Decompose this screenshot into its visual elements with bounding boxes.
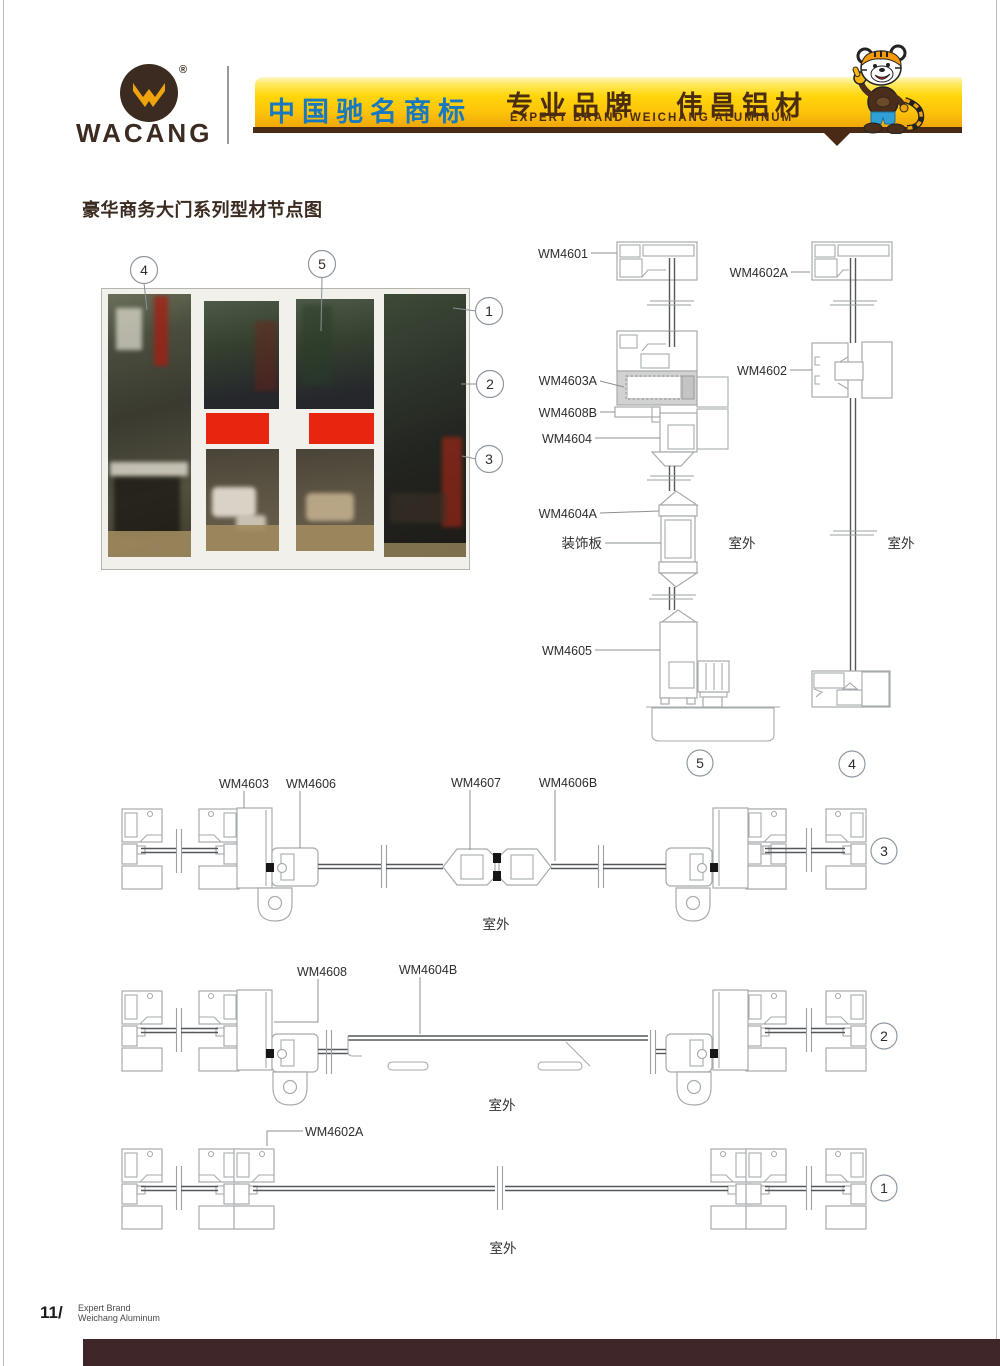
footer-line1: Expert Brand [78, 1303, 131, 1313]
callout-3-circle [476, 446, 503, 473]
photo-left-fixed-panel [108, 294, 191, 557]
label-wm4607: WM4607 [451, 776, 501, 790]
door-photo [101, 288, 470, 570]
footer-line2: Weichang Aluminum [78, 1313, 160, 1323]
label-wm4604a: WM4604A [539, 507, 598, 521]
label-outdoor-4: 室外 [888, 535, 916, 551]
tiger-mascot-icon [845, 40, 933, 134]
callout-2: 2 [486, 376, 494, 392]
label-wm4602: WM4602 [737, 364, 787, 378]
horizontal-section-2: WM4608 WM4604B 室外 2 [122, 963, 897, 1113]
section-3-circle [871, 838, 897, 864]
registered-mark: ® [179, 64, 187, 76]
photo-door2-bottom-glass [296, 449, 374, 551]
section-2-num: 2 [880, 1028, 888, 1044]
photo-door1-red-panel [206, 413, 269, 444]
label-wm4601: WM4601 [538, 247, 588, 261]
label-wm4603a: WM4603A [539, 374, 598, 388]
photo-right-fixed-panel [384, 294, 466, 557]
label-wm4602a-top: WM4602A [730, 266, 789, 280]
brand-name: WACANG [76, 118, 212, 149]
photo-door1-top-glass [204, 301, 279, 409]
label-wm4603: WM4603 [219, 777, 269, 791]
photo-door1-bottom-glass [206, 449, 279, 551]
page-number: 11/ [40, 1303, 63, 1323]
label-outdoor-5: 室外 [729, 535, 757, 551]
callout-3: 3 [485, 451, 493, 467]
label-wm4605: WM4605 [542, 644, 592, 658]
photo-door2-red-panel [309, 413, 374, 444]
label-wm4604b: WM4604B [399, 963, 457, 977]
page-title: 豪华商务大门系列型材节点图 [82, 196, 323, 222]
label-wm4606b: WM4606B [539, 776, 597, 790]
callout-4-circle [131, 257, 158, 284]
section-3-num: 3 [880, 843, 888, 859]
page-left-border [3, 0, 4, 1366]
horizontal-section-1: WM4602A 室外 1 [122, 1125, 897, 1256]
cn-trademark-text: 中国驰名商标 [268, 90, 472, 129]
label-outdoor-3: 室外 [483, 916, 510, 932]
label-outdoor-2: 室外 [489, 1097, 517, 1113]
wacang-logo-icon [118, 63, 180, 125]
vertical-section-4: WM4602A WM4602 室外 4 [730, 242, 915, 777]
label-wm4606: WM4606 [286, 777, 336, 791]
callout-2-circle [477, 371, 504, 398]
catalog-page: ® WACANG 中国驰名商标 专业品牌 伟昌铝材 EXPERT BRAND W… [0, 0, 1000, 1366]
section-1-num: 1 [880, 1180, 888, 1196]
label-decor-panel: 装饰板 [562, 536, 603, 551]
callout-5-circle [309, 251, 336, 278]
horizontal-section-3: WM4603 WM4606 WM4607 WM4606B 室外 3 [122, 776, 897, 932]
callout-1-circle [476, 298, 503, 325]
label-wm4608b: WM4608B [539, 406, 597, 420]
section-4-circle [839, 751, 865, 777]
callout-5: 5 [318, 256, 326, 272]
vertical-section-5: WM4601 WM4603A WM4608B WM4604 WM4604A 装饰… [538, 242, 780, 776]
photo-door2-top-glass [296, 299, 374, 409]
label-outdoor-1: 室外 [490, 1240, 518, 1256]
section-4-num: 4 [848, 756, 856, 772]
label-wm4604: WM4604 [542, 432, 592, 446]
section-5-circle [687, 750, 713, 776]
section-2-circle [871, 1023, 897, 1049]
footer-bar [83, 1339, 1000, 1366]
wacang-logo: ® WACANG [76, 58, 226, 143]
section-1-circle [871, 1175, 897, 1201]
header-divider [227, 66, 229, 144]
label-wm4602a-bottom: WM4602A [305, 1125, 364, 1139]
section-5-num: 5 [696, 755, 704, 771]
label-wm4608: WM4608 [297, 965, 347, 979]
en-slogan-text: EXPERT BRAND WEICHANG ALUMINUM [510, 112, 793, 124]
callout-4: 4 [140, 262, 148, 278]
callout-1: 1 [485, 303, 493, 319]
page-right-border [996, 0, 997, 1366]
